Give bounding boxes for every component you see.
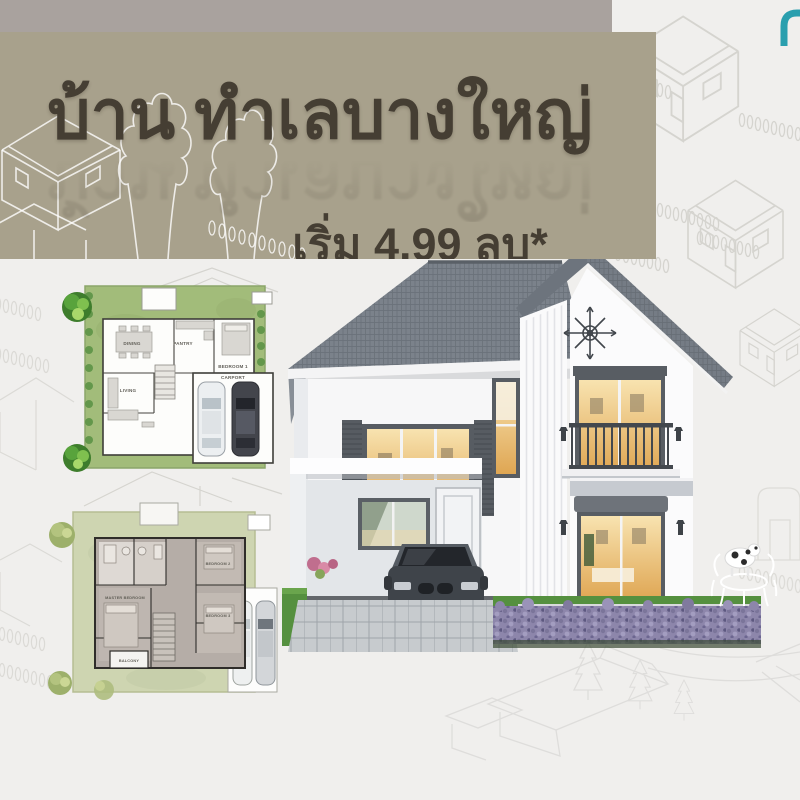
house-render <box>278 238 778 653</box>
floorplan-second-floor: MASTER BEDROOM BEDROOM 2 BEDROOM 3 BALCO… <box>46 493 280 705</box>
label-bedroom1: BEDROOM 1 <box>218 364 248 369</box>
label-bedroom2: BEDROOM 2 <box>206 562 231 566</box>
label-bedroom3: BEDROOM 3 <box>206 614 231 618</box>
banner-price: เริ่ม 4.99 ลบ* <box>160 208 656 259</box>
teal-logo-icon <box>778 4 800 50</box>
label-dining: DINING <box>123 341 141 346</box>
banner-title: บ้าน ทำเลบางใหญ่ <box>30 76 610 154</box>
sketch-houses-bottom-right <box>446 642 800 760</box>
label-living: LIVING <box>120 388 137 393</box>
banner: บ้าน ทำเลบางใหญ่ บ้าน ทำเลบางใหญ่ เริ่ม … <box>0 32 656 259</box>
label-pantry: PANTRY <box>173 341 193 346</box>
driveway <box>288 600 518 652</box>
stair-window <box>492 378 520 478</box>
lavender-hedge <box>493 606 761 644</box>
label-balcony: BALCONY <box>119 659 139 663</box>
floorplan-first-floor: DINING PANTRY BEDROOM 1 LIVING CARPORT <box>56 270 280 476</box>
label-carport: CARPORT <box>221 375 245 380</box>
poster: บ้าน ทำเลบางใหญ่ บ้าน ทำเลบางใหญ่ เริ่ม … <box>0 0 800 800</box>
label-master-bedroom: MASTER BEDROOM <box>105 596 145 600</box>
top-strip <box>0 0 612 32</box>
